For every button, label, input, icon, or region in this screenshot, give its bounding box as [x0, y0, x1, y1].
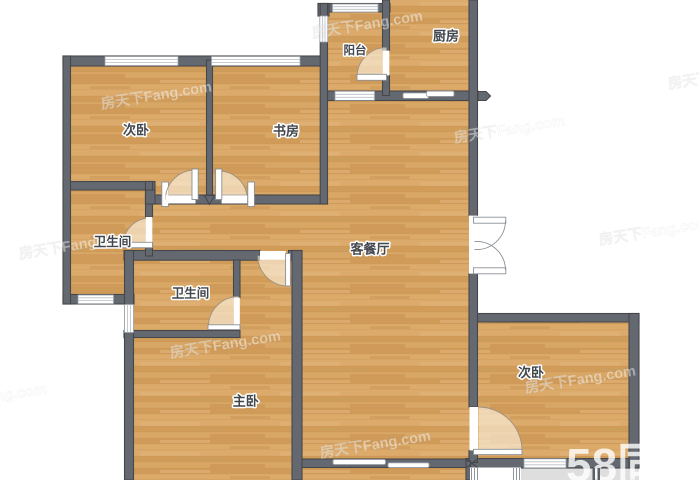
- svg-text:卫生间: 卫生间: [172, 286, 210, 301]
- svg-text:次卧: 次卧: [123, 123, 149, 138]
- svg-text:客餐厅: 客餐厅: [350, 242, 389, 257]
- svg-text:58同: 58同: [566, 439, 663, 480]
- svg-text:厨房: 厨房: [433, 29, 459, 44]
- svg-text:书房: 书房: [273, 124, 299, 139]
- svg-text:卫生间: 卫生间: [94, 234, 132, 249]
- svg-text:阳台: 阳台: [344, 43, 367, 57]
- svg-text:次卧: 次卧: [518, 365, 544, 380]
- svg-text:主卧: 主卧: [233, 394, 259, 409]
